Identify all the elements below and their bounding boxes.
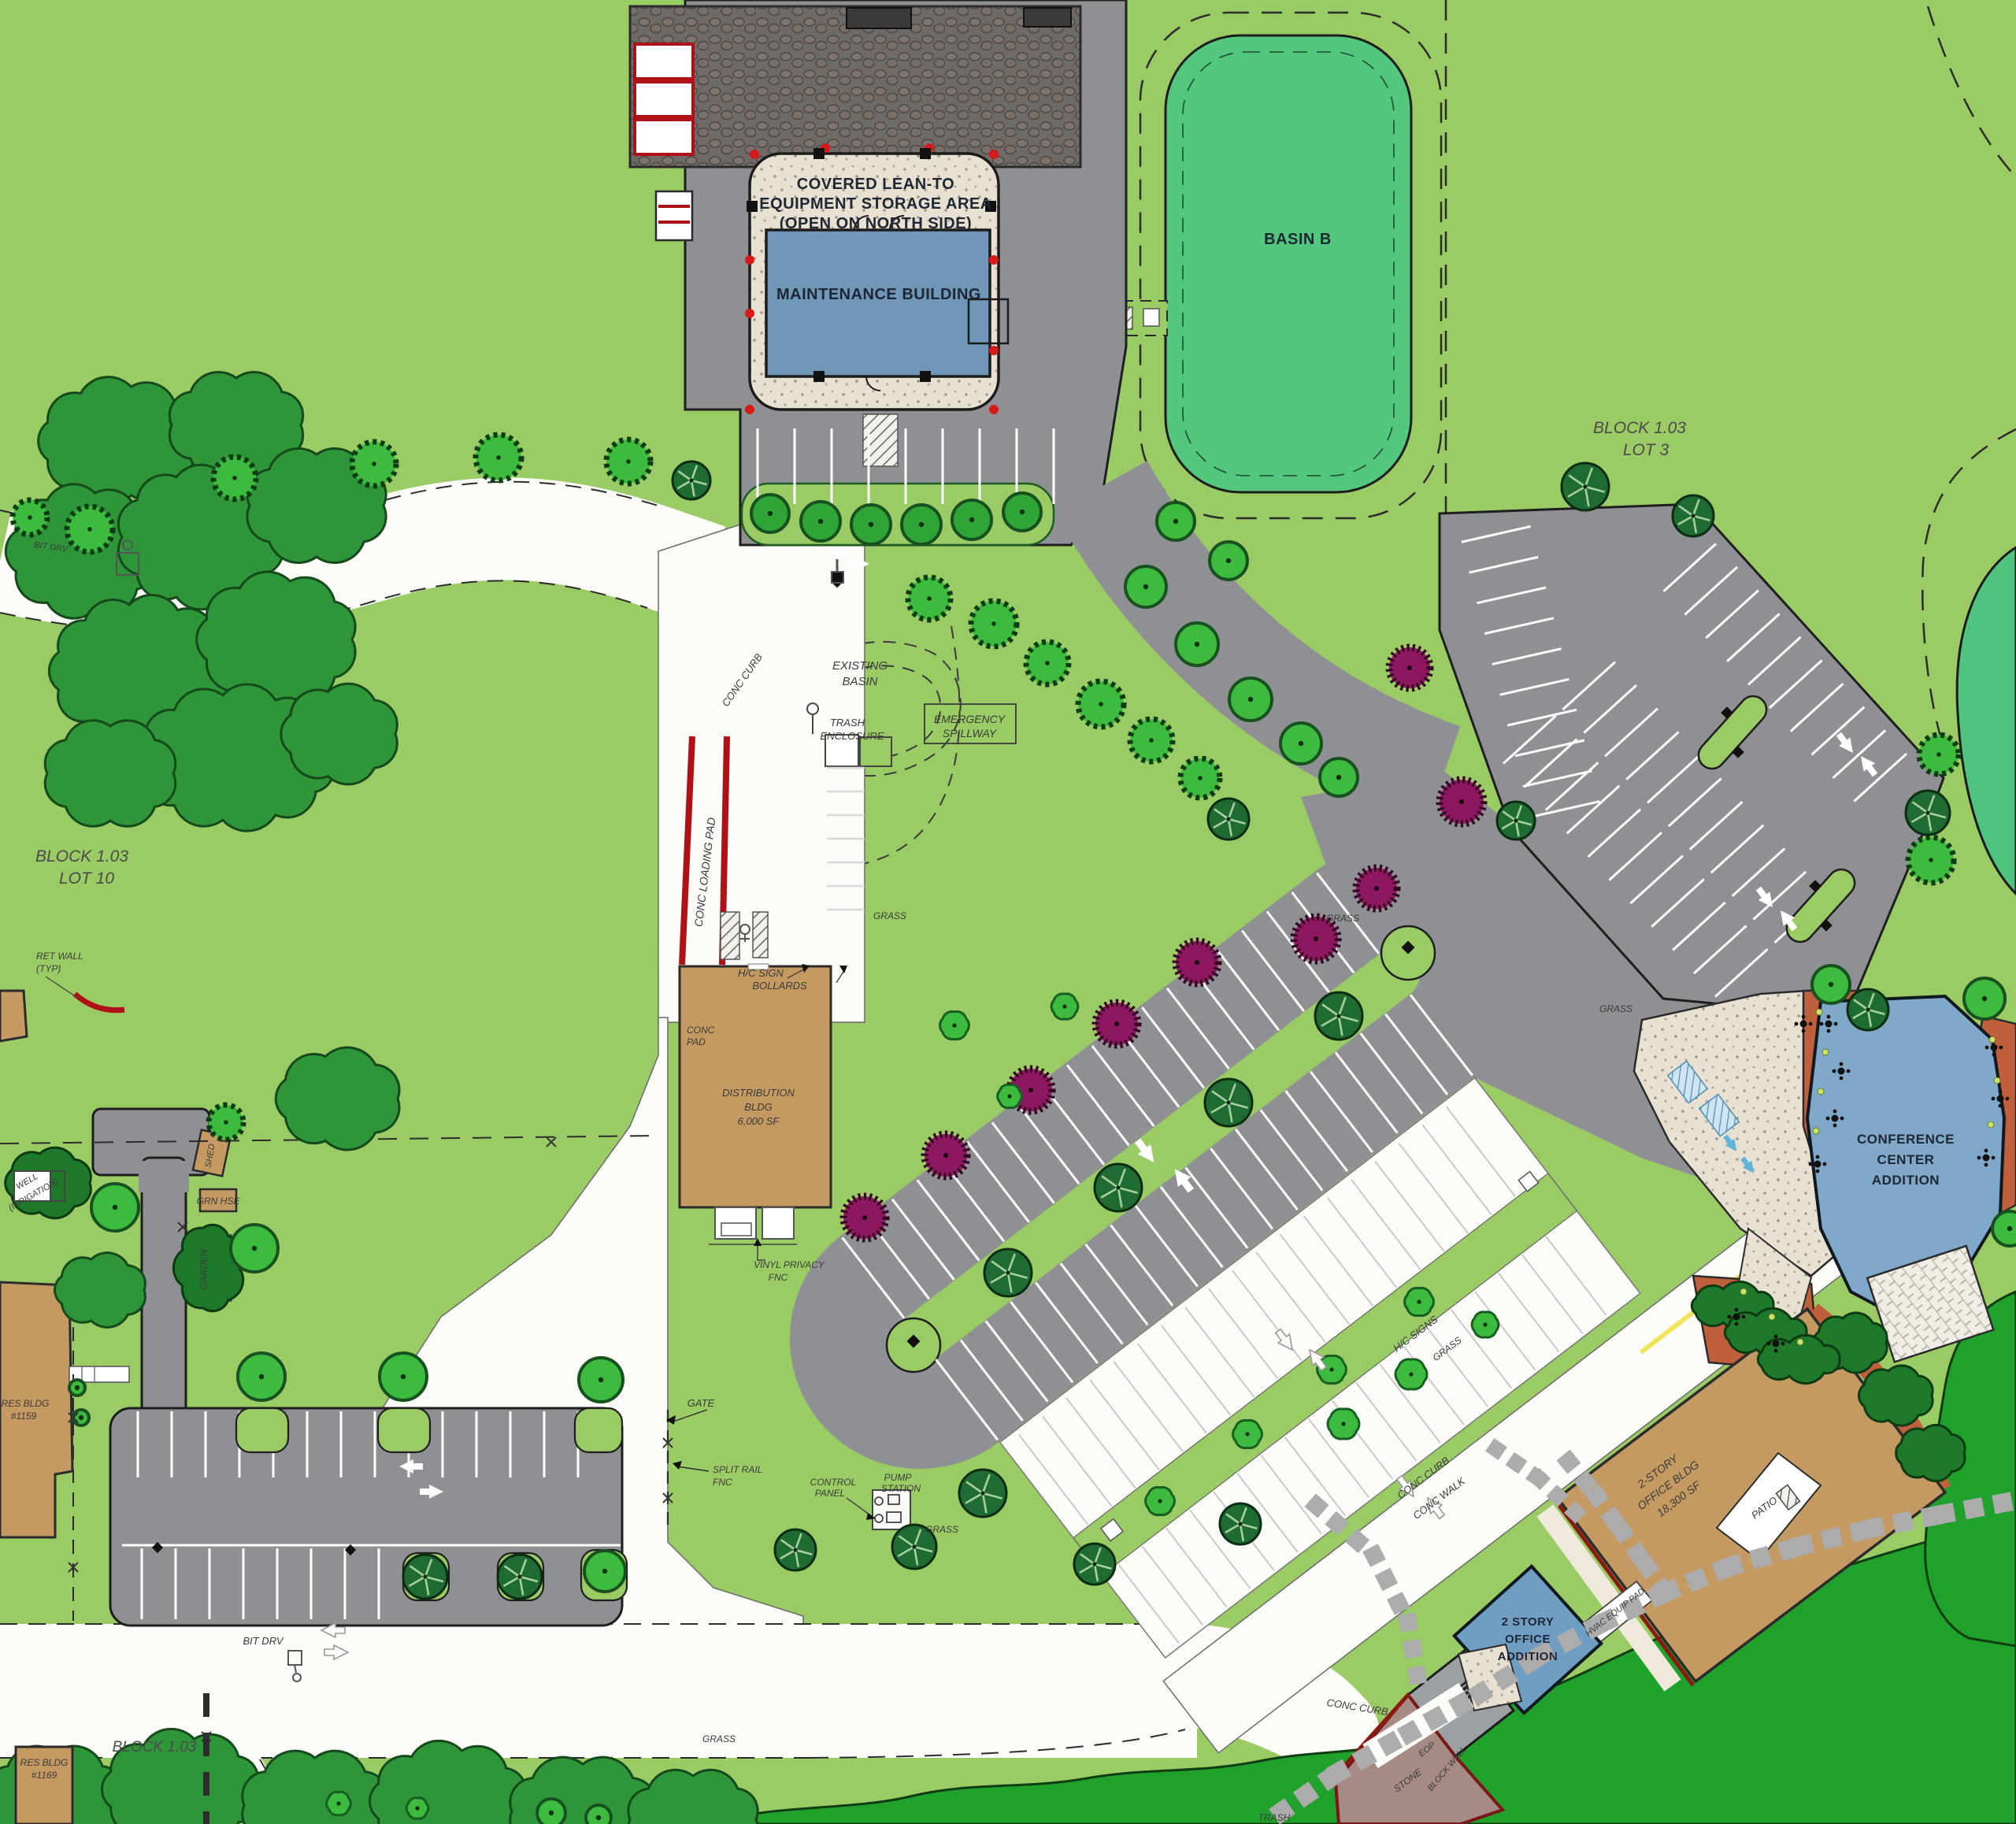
decoration (1158, 1499, 1162, 1503)
decoration (980, 1491, 984, 1495)
decoration (549, 1811, 554, 1815)
label-res-1159: #1159 (11, 1411, 37, 1422)
label-grass-2: GRASS (1326, 913, 1359, 924)
flower-dot (1822, 1049, 1829, 1055)
decoration (1198, 776, 1203, 780)
decoration (87, 527, 92, 532)
flower-dot (1813, 1128, 1819, 1134)
decoration (1802, 1015, 1806, 1019)
decoration (1514, 818, 1518, 822)
decoration (1245, 1432, 1249, 1436)
label-maintenance-building: MAINTENANCE BUILDING (776, 286, 981, 303)
label-covered-1: COVERED LEAN-TO (797, 176, 954, 193)
decoration (1840, 1117, 1844, 1121)
decoration (1999, 1046, 2003, 1050)
decoration (259, 1374, 264, 1379)
flower-dot (1818, 1088, 1824, 1095)
decoration (1992, 1097, 1996, 1101)
decoration (1116, 1185, 1120, 1189)
label-garden: GARDEN (198, 1249, 209, 1290)
decoration (768, 511, 773, 516)
decoration (1336, 775, 1341, 780)
site-plan-drawing: COVERED LEAN-TO EQUIPMENT STORAGE AREA (… (0, 0, 2016, 1824)
decoration (1114, 1021, 1119, 1026)
decoration (1238, 1522, 1242, 1526)
decoration (927, 596, 932, 601)
label-vinyl-1: VINYL PRIVACY (754, 1259, 825, 1270)
decoration (1020, 510, 1025, 514)
column-tick (920, 148, 931, 159)
decoration (1691, 513, 1695, 517)
label-vinyl-2: FNC (769, 1272, 788, 1283)
decoration (1314, 936, 1318, 941)
utility-dot (989, 150, 999, 159)
label-res-bldg-1169a: RES BLDG (20, 1757, 69, 1768)
decoration (1999, 1104, 2003, 1108)
table-dot (1773, 1340, 1780, 1348)
decoration (1999, 1090, 2003, 1094)
decoration (1827, 1029, 1831, 1033)
label-res-1169: #1169 (31, 1770, 57, 1781)
flower-dot (1740, 1288, 1747, 1295)
decoration (1816, 1155, 1820, 1159)
maintenance-building (766, 230, 990, 376)
decoration (113, 1205, 117, 1210)
table-dot (1997, 1096, 2004, 1103)
decoration (2007, 1226, 2012, 1231)
decoration (1833, 1124, 1837, 1128)
decoration (1834, 1022, 1838, 1026)
decoration (517, 1574, 521, 1578)
label-existing-basin-1: EXISTING (832, 659, 888, 673)
decoration (1823, 1162, 1827, 1166)
label-basin-b: BASIN B (1264, 231, 1332, 248)
label-ret-wall-1: RET WALL (36, 951, 83, 962)
decoration (1827, 1015, 1831, 1019)
decoration (1992, 1053, 1996, 1057)
decoration (1409, 1372, 1413, 1376)
stepping-stone (1863, 1517, 1885, 1539)
decoration (1407, 665, 1412, 670)
decoration (423, 1574, 427, 1578)
decoration (1977, 1156, 1981, 1160)
decoration (991, 621, 996, 626)
flower-dot (1989, 1036, 1996, 1043)
table-dot (1825, 1021, 1833, 1028)
label-covered-2: EQUIPMENT STORAGE AREA (759, 195, 991, 213)
utility-dot (750, 150, 759, 159)
decoration (252, 1246, 257, 1251)
label-block-103-east: BLOCK 1.03 (1593, 419, 1686, 437)
decoration (1045, 661, 1050, 665)
decoration (952, 1023, 956, 1027)
label-grass-4: GRASS (925, 1524, 958, 1535)
decoration (1173, 519, 1178, 524)
decoration (862, 1215, 867, 1220)
table-dot (1838, 1068, 1845, 1075)
label-control-2: PANEL (815, 1488, 845, 1499)
column-tick (747, 201, 758, 212)
decoration (1417, 1299, 1421, 1303)
decoration (1767, 1342, 1771, 1346)
label-split-rail-2: FNC (713, 1477, 732, 1488)
stepping-stone (1403, 1639, 1422, 1659)
label-trash-enclosure-1: TRASH (830, 717, 865, 728)
decoration (626, 459, 631, 464)
decoration (1092, 1562, 1096, 1566)
decoration (1774, 1349, 1778, 1353)
label-distribution-2: BLDG (744, 1101, 772, 1113)
decoration (1248, 697, 1253, 702)
decoration (372, 462, 376, 466)
decoration (1829, 982, 1833, 987)
flower-dot (1769, 1314, 1775, 1320)
decoration (1742, 1315, 1746, 1319)
label-grass-3: GRASS (1599, 1003, 1632, 1014)
decoration (598, 1377, 603, 1382)
label-conc-pad-1: CONC (687, 1025, 715, 1036)
decoration (1341, 1422, 1345, 1425)
label-grn-hse: GRN HSE (197, 1196, 241, 1207)
decoration (1336, 1014, 1340, 1018)
label-res-bldg-1159a: RES BLDG (2, 1398, 50, 1409)
decoration (232, 476, 237, 480)
decoration (415, 1806, 419, 1810)
decoration (1007, 1094, 1011, 1098)
decoration (1099, 702, 1103, 706)
label-trash-enclosure-2: ENCLOSURE (821, 730, 884, 742)
flower-dot (1994, 1077, 2000, 1084)
label-conc-pad-2: PAD (687, 1036, 706, 1047)
stepping-stone (1963, 1497, 1985, 1519)
decoration (1840, 1062, 1844, 1066)
decoration (1143, 584, 1148, 589)
column-tick (920, 371, 931, 382)
table-dot (1832, 1115, 1839, 1122)
label-conference-2: CENTER (1877, 1152, 1935, 1167)
decoration (1735, 1322, 1739, 1326)
label-lot-3: LOT 3 (1623, 441, 1669, 459)
decoration (1149, 738, 1154, 743)
decoration (689, 478, 693, 482)
decoration (1847, 1070, 1851, 1073)
table-dot (1733, 1314, 1740, 1321)
label-distribution-1: DISTRIBUTION (722, 1087, 795, 1099)
flower-dot (1797, 1339, 1803, 1345)
tree-icon (586, 1805, 611, 1824)
decoration (2006, 1097, 2010, 1101)
island (378, 1408, 430, 1452)
label-grass-1: GRASS (873, 910, 906, 921)
label-pump-2: STATION (881, 1483, 921, 1494)
decoration (1809, 1022, 1813, 1026)
decoration (602, 1569, 607, 1574)
flower-dot (1816, 1009, 1822, 1015)
decoration (1795, 1022, 1799, 1026)
label-addition-2: OFFICE (1505, 1633, 1551, 1646)
decoration (1459, 799, 1464, 804)
decoration (1226, 558, 1231, 563)
decoration (1802, 1029, 1806, 1033)
decoration (1866, 1007, 1870, 1011)
utility-dot (745, 405, 754, 414)
column-tick (813, 148, 825, 159)
decoration (1781, 1342, 1785, 1346)
decoration (1833, 1070, 1836, 1073)
label-existing-basin-2: BASIN (842, 675, 877, 688)
decoration (1833, 1110, 1837, 1114)
decoration (1226, 817, 1230, 821)
label-gate: GATE (687, 1397, 715, 1409)
decoration (793, 1548, 797, 1552)
table-dot (1800, 1021, 1807, 1028)
column-tick (813, 371, 825, 382)
decoration (1840, 1077, 1844, 1081)
stepping-stone (1992, 1492, 2014, 1514)
label-pump-1: PUMP (884, 1472, 912, 1483)
decoration (869, 522, 873, 527)
decoration (75, 1385, 80, 1390)
decoration (1006, 1270, 1010, 1274)
label-lot-10: LOT 10 (59, 869, 114, 888)
decoration (336, 1801, 340, 1805)
tree-canopy (197, 572, 356, 707)
decoration (1992, 1156, 1996, 1160)
label-bit-drv-1: BIT DRV (243, 1635, 283, 1647)
decoration (1929, 858, 1933, 862)
label-split-rail-1: SPLIT RAIL (713, 1464, 762, 1475)
utility-dot (745, 309, 754, 318)
label-emergency-2: SPILLWAY (943, 727, 998, 740)
label-emergency-1: EMERGENCY (934, 713, 1006, 725)
stepping-stone (1407, 1666, 1427, 1685)
label-control-1: CONTROL (810, 1477, 857, 1488)
decoration (1226, 1100, 1230, 1104)
utility-dot (745, 255, 754, 265)
label-block-103-west: BLOCK 1.03 (35, 847, 128, 866)
table-dot (1814, 1161, 1821, 1168)
decoration (1735, 1308, 1739, 1312)
utility-dot (989, 405, 999, 414)
table-dot (1991, 1044, 1998, 1051)
stepping-stone (1398, 1612, 1417, 1632)
decoration (1728, 1315, 1732, 1319)
utility-dot (989, 255, 999, 265)
decoration (1195, 960, 1199, 965)
decoration (1483, 1322, 1487, 1326)
decoration (818, 519, 823, 524)
decoration (1982, 996, 1987, 1001)
decoration (1329, 1367, 1333, 1371)
decoration (943, 1153, 948, 1158)
decoration (401, 1374, 406, 1379)
label-ret-wall-2: (TYP) (36, 963, 61, 974)
label-distribution-3: 6,000 SF (738, 1115, 780, 1127)
decoration (1925, 810, 1929, 814)
label-conference-1: CONFERENCE (1857, 1132, 1955, 1147)
decoration (1062, 1004, 1066, 1008)
decoration (1936, 752, 1941, 757)
decoration (912, 1544, 916, 1548)
decoration (1826, 1117, 1830, 1121)
decoration (1809, 1162, 1813, 1166)
label-hc-sign-2: BOLLARDS (752, 980, 807, 992)
decoration (919, 522, 924, 527)
island (575, 1408, 622, 1452)
label-block-103-south: BLOCK 1.03 (113, 1739, 197, 1755)
decoration (969, 517, 974, 522)
decoration (596, 1815, 601, 1820)
stepping-stone (1934, 1503, 1956, 1525)
decoration (1774, 1335, 1778, 1339)
decoration (79, 1415, 83, 1420)
label-addition-1: 2 STORY (1502, 1615, 1555, 1629)
decoration (1299, 741, 1303, 746)
flower-dot (1988, 1121, 1994, 1128)
decoration (1374, 886, 1379, 891)
decoration (1195, 642, 1199, 647)
label-trash: TRASH (1258, 1812, 1291, 1823)
decoration (1984, 1149, 1988, 1153)
decoration (496, 455, 501, 460)
decoration (1820, 1022, 1824, 1026)
island (236, 1408, 288, 1452)
decoration (1816, 1170, 1820, 1173)
label-conference-3: ADDITION (1872, 1173, 1940, 1188)
table-dot (1983, 1155, 1990, 1162)
site-plan-page: COVERED LEAN-TO EQUIPMENT STORAGE AREA (… (0, 0, 2016, 1824)
decoration (1028, 1088, 1033, 1092)
decoration (1985, 1046, 1989, 1050)
label-grass-5: GRASS (702, 1733, 736, 1744)
stepping-stone (1892, 1511, 1914, 1533)
utility-dot (989, 346, 999, 355)
label-addition-3: ADDITION (1498, 1650, 1558, 1663)
label-covered-3: (OPEN ON NORTH SIDE) (780, 215, 972, 232)
decoration (1984, 1163, 1988, 1167)
decoration (224, 1120, 228, 1125)
decoration (28, 515, 32, 520)
tree-icon (1992, 1211, 2016, 1246)
decoration (1583, 484, 1587, 488)
label-hc-sign-1: H/C SIGN (738, 967, 784, 979)
